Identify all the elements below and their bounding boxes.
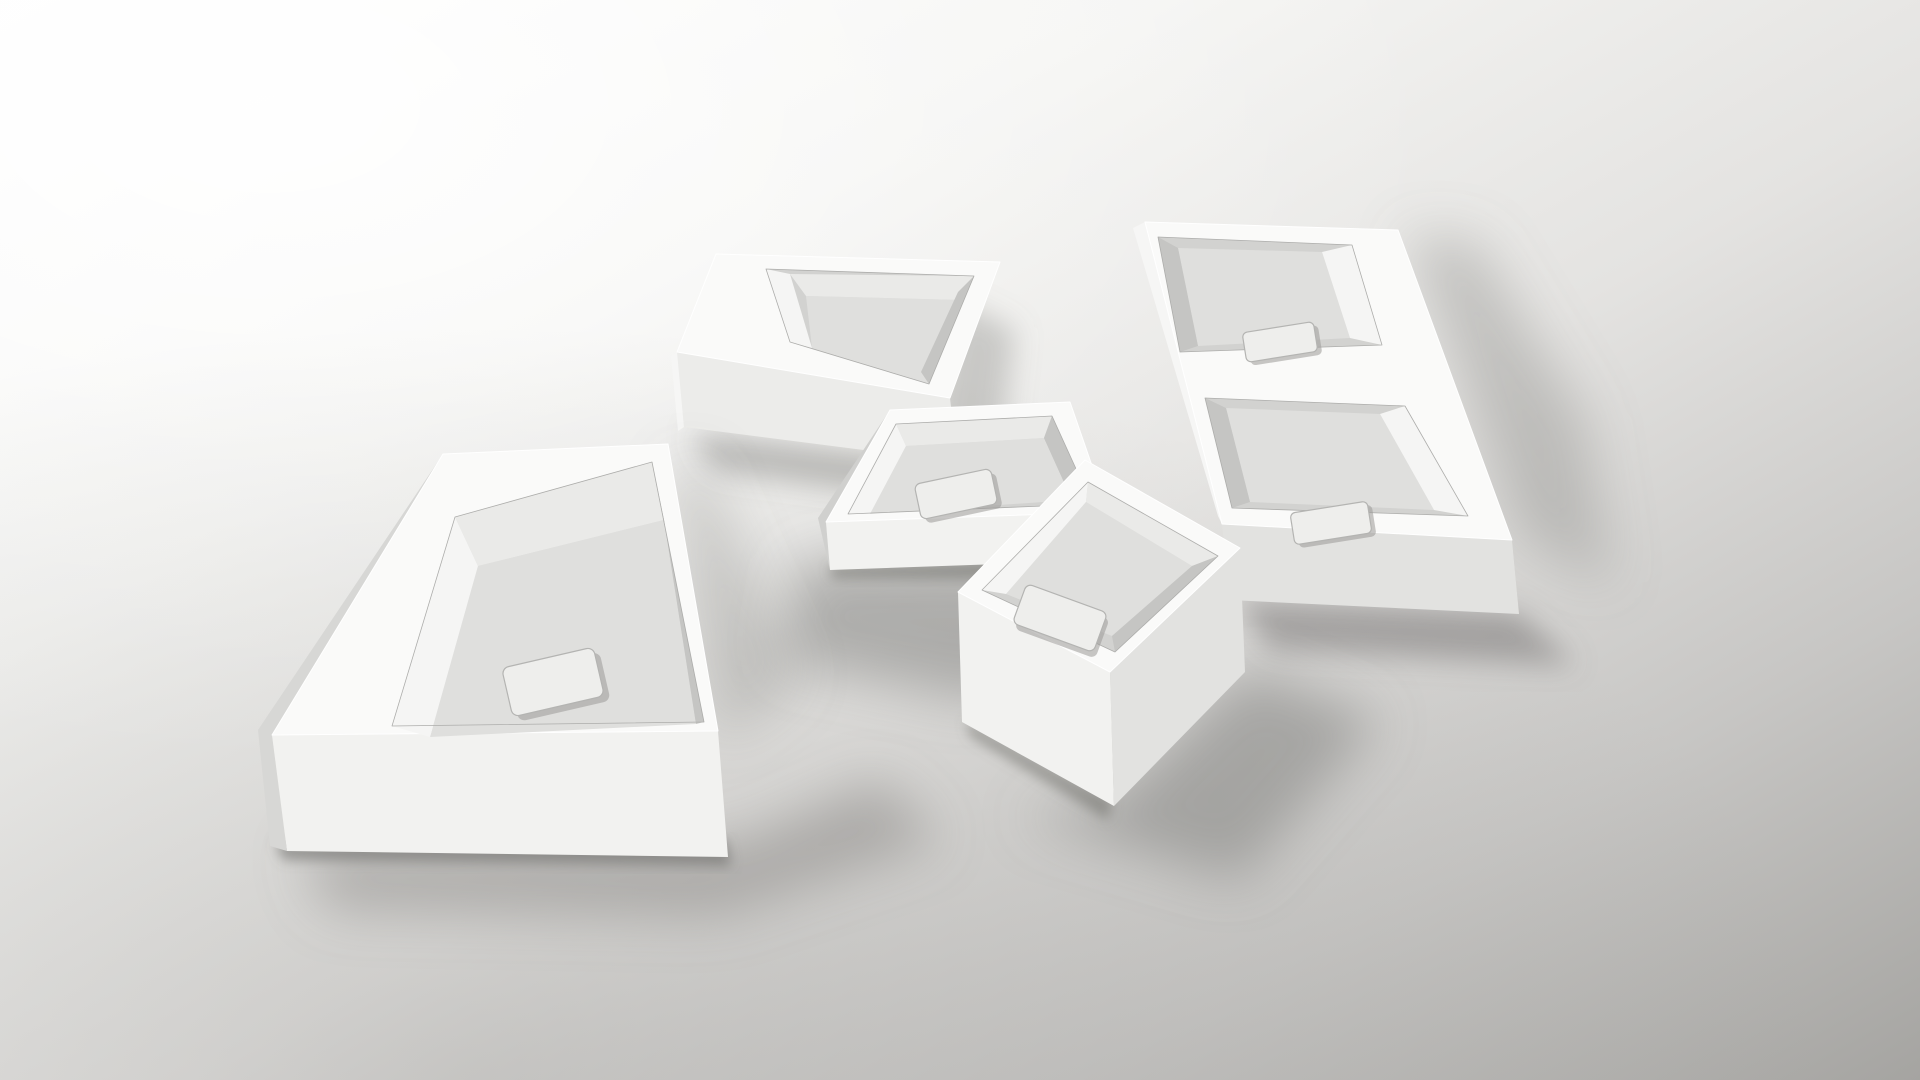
left-basin-front-face: [272, 731, 728, 857]
photo-stage: [0, 0, 1920, 1080]
basin-photograph: [0, 0, 1920, 1080]
top-center-basin-bowl-back-wall: [790, 274, 974, 300]
